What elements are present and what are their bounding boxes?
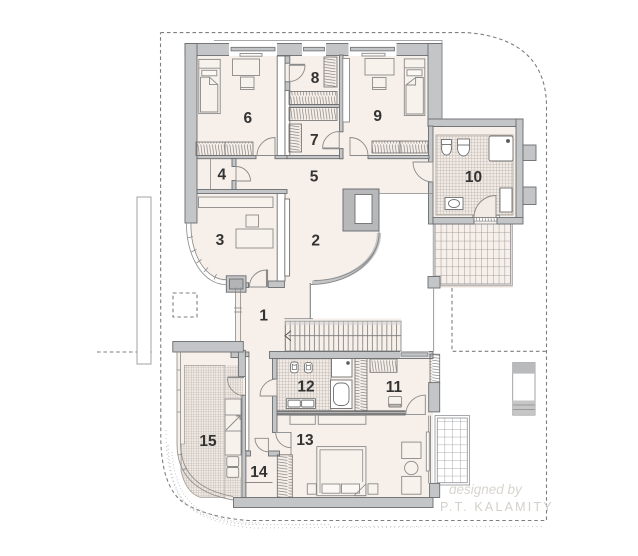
svg-text:designed by: designed by bbox=[449, 482, 523, 497]
svg-text:3: 3 bbox=[216, 232, 225, 249]
svg-text:8: 8 bbox=[311, 70, 320, 87]
svg-text:1: 1 bbox=[259, 308, 268, 325]
svg-text:15: 15 bbox=[199, 433, 217, 450]
svg-text:4: 4 bbox=[217, 167, 226, 184]
svg-text:P.T. KALAMITY: P.T. KALAMITY bbox=[440, 500, 554, 514]
svg-text:12: 12 bbox=[297, 379, 314, 396]
svg-text:5: 5 bbox=[310, 169, 319, 186]
svg-text:9: 9 bbox=[373, 108, 382, 125]
svg-text:7: 7 bbox=[310, 132, 319, 149]
svg-text:13: 13 bbox=[296, 432, 314, 449]
svg-text:14: 14 bbox=[250, 464, 268, 481]
svg-text:2: 2 bbox=[311, 233, 320, 250]
svg-text:6: 6 bbox=[243, 110, 252, 127]
svg-text:10: 10 bbox=[465, 169, 482, 186]
svg-text:11: 11 bbox=[386, 379, 403, 396]
